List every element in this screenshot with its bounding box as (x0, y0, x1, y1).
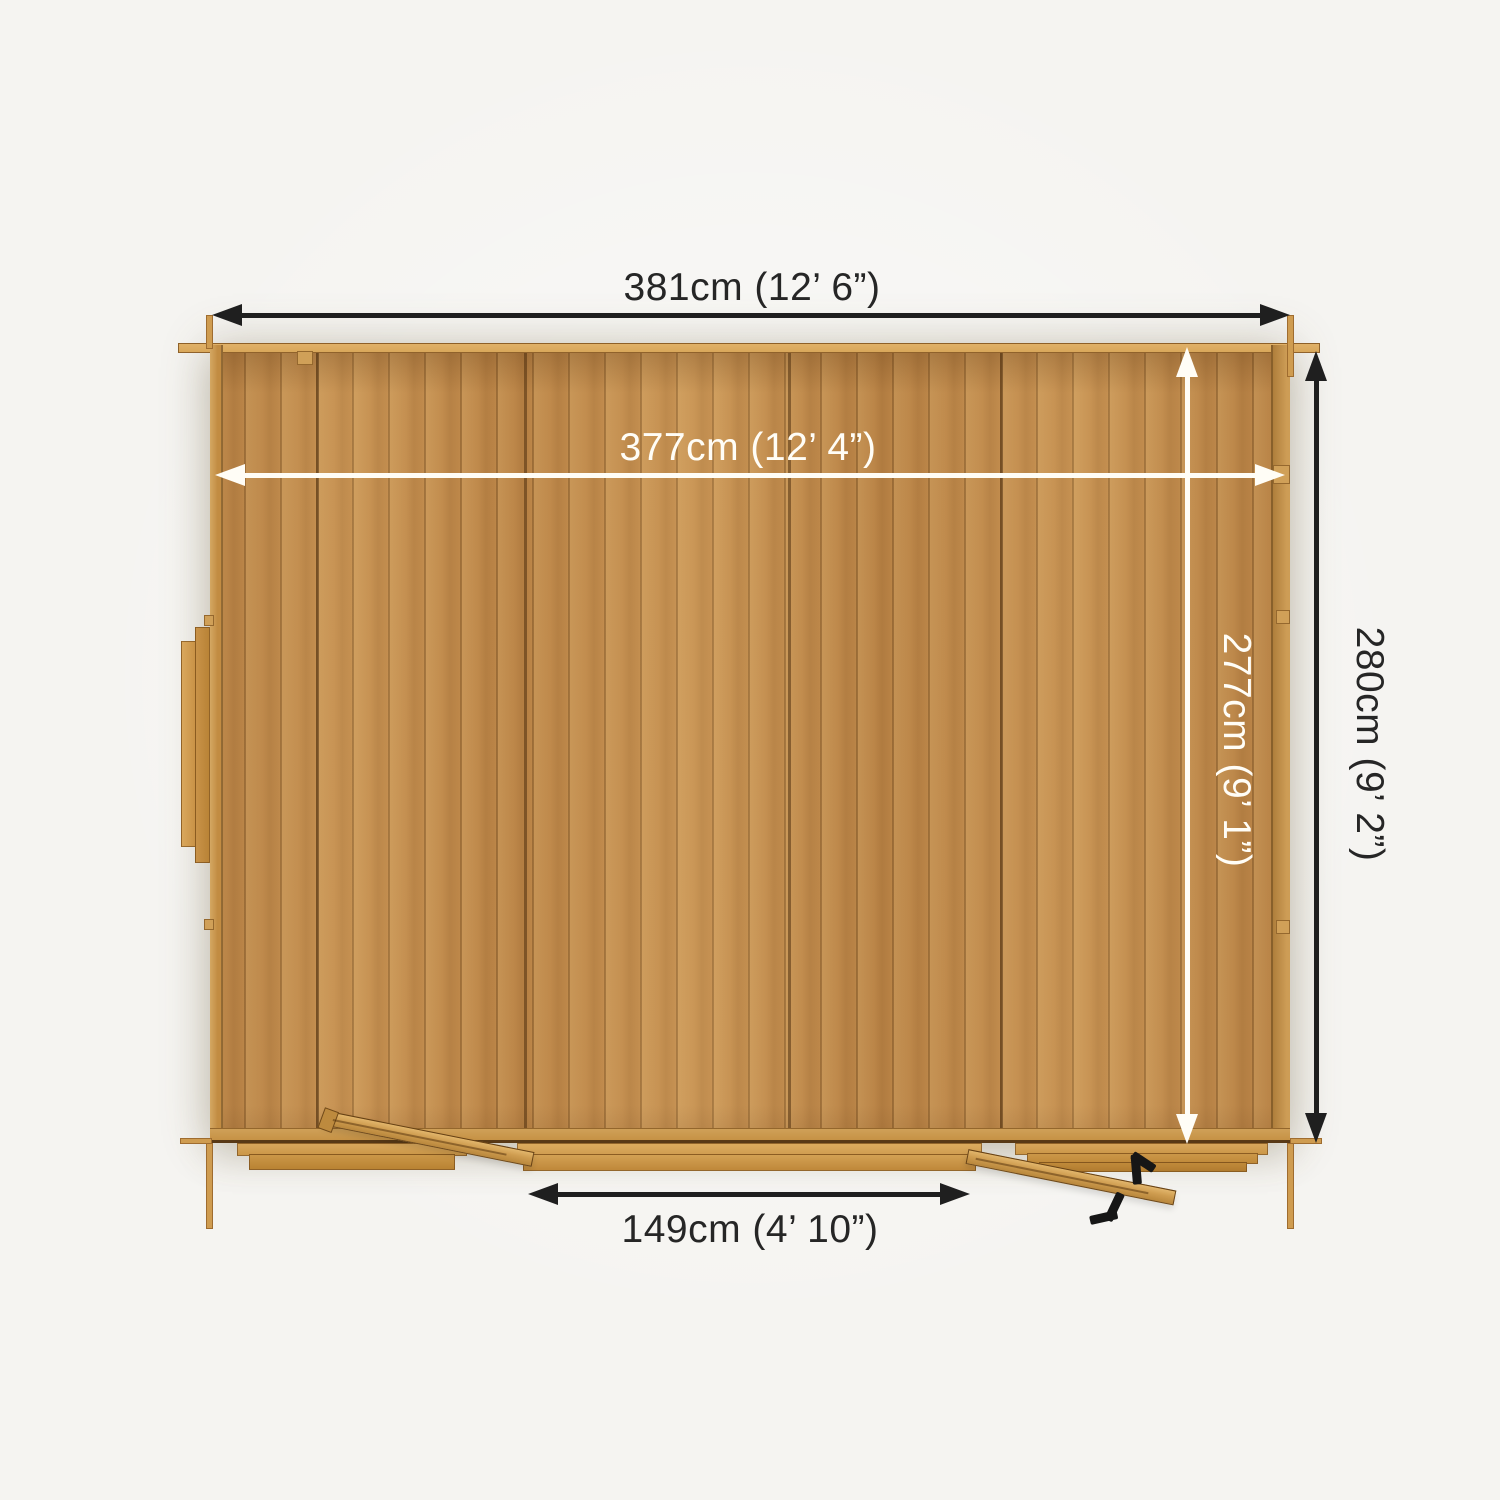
wall-joint-block (297, 351, 313, 365)
back-wall (178, 343, 1320, 353)
inner-width-label: 377cm (12’ 4”) (620, 426, 877, 470)
arrowhead-right-icon (1260, 304, 1290, 326)
inner-depth-arrow (1185, 349, 1190, 1142)
arrowhead-right-icon (1255, 464, 1285, 486)
wall-joint-block (1276, 610, 1290, 624)
front-window-sill-left (249, 1154, 455, 1170)
door-handle (1096, 1190, 1136, 1228)
door-width-arrow (530, 1192, 968, 1197)
wall-joint-block (1276, 920, 1290, 934)
inner-depth-label: 277cm (9’ 1”) (1214, 633, 1258, 868)
arrow-line (546, 1192, 952, 1197)
outer-width-arrow (214, 313, 1288, 318)
inner-width-arrow (217, 473, 1283, 478)
wall-joint-block (204, 919, 214, 930)
wall-joint-block (204, 615, 214, 626)
extension-line (180, 1138, 212, 1144)
arrow-line (233, 473, 1267, 478)
door-threshold (523, 1154, 976, 1171)
arrowhead-down-icon (1305, 1113, 1327, 1143)
extension-line (1287, 1143, 1294, 1229)
floor-plank-joint (524, 345, 527, 1143)
arrow-line (1314, 369, 1319, 1125)
arrowhead-down-icon (1176, 1114, 1198, 1144)
side-window-inner-board (195, 627, 210, 863)
door-width-label: 149cm (4’ 10”) (622, 1208, 879, 1252)
outer-depth-arrow (1314, 353, 1319, 1141)
floor-plank-joint (316, 345, 319, 1143)
floor-plan-diagram: 381cm (12’ 6”) 377cm (12’ 4”) 277cm (9’ … (0, 0, 1500, 1500)
extension-line (206, 1143, 213, 1229)
arrowhead-right-icon (940, 1183, 970, 1205)
outer-depth-label: 280cm (9’ 2”) (1347, 627, 1391, 862)
arrow-line (1185, 365, 1190, 1126)
outer-width-label: 381cm (12’ 6”) (624, 266, 881, 310)
arrow-line (230, 313, 1272, 318)
door-handle (1116, 1148, 1156, 1186)
floor-plank-joint (1000, 345, 1003, 1143)
